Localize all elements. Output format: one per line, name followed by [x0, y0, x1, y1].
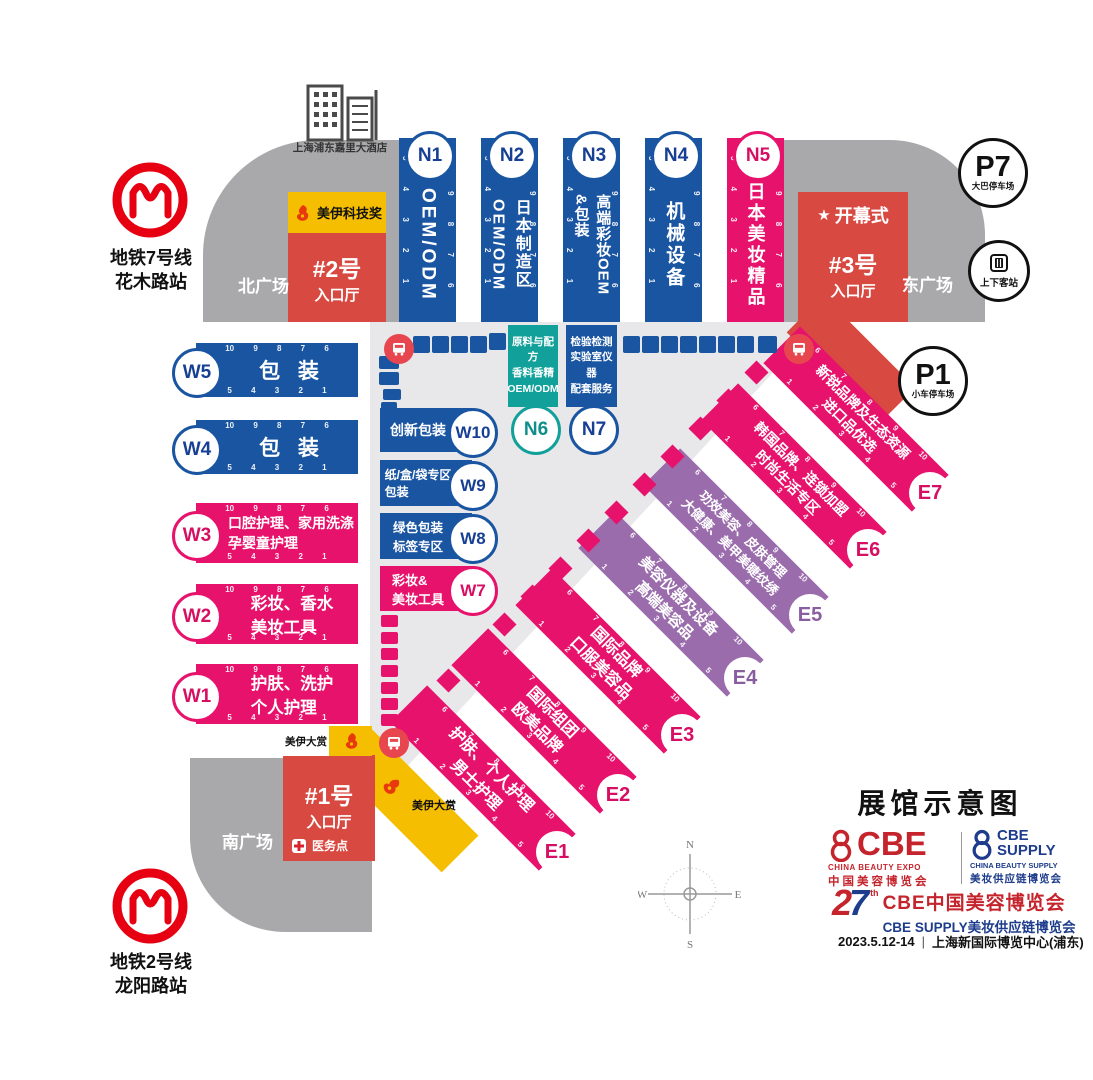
entrance-1-number: #1号 [305, 777, 354, 811]
hall-N3-right-numbers: 10 9 8 7 6 [610, 156, 618, 314]
hall-N6-label: 原料与配方 香料香精 OEM/ODM [507, 335, 558, 398]
hall-N3-badge: N3 [569, 131, 619, 181]
parking-p1-id: P1 [915, 362, 950, 388]
service-box [661, 336, 678, 353]
service-box [470, 336, 487, 353]
opening-ceremony-label: 开幕式 [835, 202, 889, 228]
meiyi-logo-icon [292, 203, 312, 223]
opening-ceremony: ★ 开幕式 [817, 202, 888, 228]
station-icon [989, 253, 1009, 273]
edition-title-cn: CBE中国美容博览会 [883, 888, 1076, 915]
hall-W8-badge: W8 [448, 514, 498, 564]
entrance-2-label: 入口厅 [314, 284, 359, 305]
hall-W4-badge: W4 [172, 425, 222, 475]
hall-W4-label: 包 装 [229, 432, 325, 462]
service-box [432, 336, 449, 353]
hall-W3-label: 口腔护理、家用洗涤 孕婴童护理 [200, 513, 354, 553]
hall-W2-top-numbers: 10 9 8 7 6 [196, 586, 358, 594]
meiyi-logo-icon [341, 731, 361, 751]
hall-W9-badge: W9 [448, 461, 498, 511]
hall-W7-badge: W7 [448, 566, 498, 616]
star-icon: ★ [817, 206, 830, 224]
edition-titles: CBE中国美容博览会 CBE SUPPLY美妆供应链博览会 [883, 888, 1076, 936]
cbe-logo-mark [828, 828, 854, 862]
compass-n: N [686, 839, 694, 851]
hall-W1-bottom-numbers: 5 4 3 2 1 [196, 714, 358, 722]
hall-W1-badge: W1 [172, 672, 222, 722]
cbe-supply-logo-name: CBE SUPPLY [997, 828, 1056, 858]
hall-E6-label: 韩国品牌、连锁加盟 时尚生活专区 [736, 418, 852, 534]
south-plaza-label: 南广场 [222, 828, 273, 853]
entrance-2-number: #2号 [313, 250, 362, 284]
service-box [737, 336, 754, 353]
entrance-3-number: #3号 [829, 246, 878, 280]
service-box [379, 372, 399, 385]
hall-W4-top-numbers: 10 9 8 7 6 [196, 422, 358, 430]
hall-E7-badge: E7 [909, 472, 951, 514]
service-box [623, 336, 640, 353]
service-box [451, 336, 468, 353]
hall-N7-label: 检验检测 实验室仪器 配套服务 [566, 335, 617, 398]
hall-N4-label: 机械设备 [660, 201, 688, 289]
service-box [381, 714, 398, 726]
medical-label: 医务点 [312, 837, 348, 854]
shuttle-bus-icon [384, 334, 414, 364]
cbe-logo-en: CHINA BEAUTY EXPO [828, 863, 956, 872]
metro2-label: 地铁2号线 龙阳路站 [96, 950, 206, 999]
event-date: 2023.5.12-14 [838, 934, 915, 949]
hall-N7: 检验检测 实验室仪器 配套服务 [566, 325, 617, 407]
hall-W1-label: 护肤、洗护 个人护理 [221, 670, 334, 718]
entrance-hall-3: ★ 开幕式 #3号 入口厅 [798, 192, 908, 322]
hall-W2-badge: W2 [172, 592, 222, 642]
parking-p7: P7 大巴停车场 [958, 138, 1028, 208]
hall-E6-badge: E6 [847, 529, 889, 571]
medical-point: 医务点 [291, 837, 348, 854]
hall-N1-right-numbers: 10 9 8 7 6 [446, 156, 454, 314]
service-box [680, 336, 697, 353]
compass-s: S [687, 939, 693, 951]
hall-N7-badge: N7 [569, 405, 619, 455]
service-box [699, 336, 716, 353]
grand-award-ramp-label: 美伊大赏 [412, 797, 456, 813]
hall-N1-label: OEM/ODM [414, 188, 442, 302]
page-title: 展馆示意图 [790, 782, 1090, 822]
tech-award-label: 美伊科技奖 [317, 203, 382, 222]
logo-divider [961, 832, 962, 884]
hall-N1-badge: N1 [405, 131, 455, 181]
metro-logo-line2 [112, 868, 188, 944]
hall-W10-badge: W10 [448, 408, 498, 458]
hall-N2-badge: N2 [487, 131, 537, 181]
hall-W2-label: 彩妆、香水 美妆工具 [221, 590, 334, 638]
hall-E3-badge: E3 [661, 714, 703, 756]
service-box [381, 682, 398, 694]
hotel-label: 上海浦东嘉里大酒店 [284, 140, 396, 155]
passenger-station-label: 上下客站 [980, 275, 1018, 289]
hall-W3-bottom-numbers: 5 4 3 2 1 [196, 553, 358, 561]
hall-E2-badge: E2 [597, 774, 639, 816]
hall-N4-right-numbers: 10 9 8 7 6 [692, 156, 700, 314]
hall-E4-badge: E4 [724, 657, 766, 699]
service-box [413, 336, 430, 353]
parking-p1: P1 小车停车场 [898, 346, 968, 416]
hall-N2-left-numbers: 5 4 3 2 1 [483, 156, 491, 314]
meiyi-logo-icon [376, 770, 407, 801]
edition-digit-7: 7 [849, 888, 869, 919]
medical-cross-icon [291, 838, 307, 854]
parking-p7-label: 大巴停车场 [972, 180, 1015, 192]
service-box [381, 402, 397, 412]
east-plaza-label: 东广场 [902, 271, 953, 296]
hall-W2-bottom-numbers: 5 4 3 2 1 [196, 634, 358, 642]
hall-W5-bottom-numbers: 5 4 3 2 1 [196, 387, 358, 395]
hall-N6-badge: N6 [511, 405, 561, 455]
hall-N2-label: 日本制造区 OEM/ODM [486, 199, 532, 291]
service-box [381, 698, 398, 710]
service-box [381, 615, 398, 627]
hall-N2-right-numbers: 10 9 8 7 6 [528, 156, 536, 314]
hall-W5-top-numbers: 10 9 8 7 6 [196, 345, 358, 353]
hall-N5-right-numbers: 10 9 8 7 6 [774, 156, 782, 314]
entrance-hall-1: #1号 入口厅 医务点 [283, 755, 375, 861]
date-venue-separator: | [922, 934, 925, 949]
cbe-logo-name: CBE [857, 828, 927, 859]
hall-W1-top-numbers: 10 9 8 7 6 [196, 666, 358, 674]
service-box [718, 336, 735, 353]
compass-e: E [735, 889, 742, 901]
hall-N5-left-numbers: 5 4 3 2 1 [729, 156, 737, 314]
metro-logo-line7 [112, 162, 188, 238]
hall-N3-label: 高端彩妆OEM &包装 [570, 194, 614, 295]
entrance-1-label: 入口厅 [306, 811, 351, 832]
event-date-venue: 2023.5.12-14 | 上海新国际博览中心(浦东) [838, 932, 1084, 951]
grand-award-strip: 美伊大赏 [283, 726, 329, 756]
parking-p1-label: 小车停车场 [912, 388, 955, 400]
hall-W4-bottom-numbers: 5 4 3 2 1 [196, 464, 358, 472]
compass-w: W [638, 889, 648, 901]
shuttle-bus-icon [784, 334, 814, 364]
metro7-label: 地铁7号线 花木路站 [96, 246, 206, 295]
meiyi-tech-award: 美伊科技奖 [288, 192, 386, 233]
cbe-logo: CBE CHINA BEAUTY EXPO 中国美容博览会 [828, 828, 956, 889]
hall-W5-label: 包 装 [229, 355, 325, 385]
service-box [383, 389, 401, 400]
service-box [489, 333, 506, 350]
compass-rose: N S W E [638, 836, 742, 952]
service-box [381, 665, 398, 677]
parking-p7-id: P7 [975, 154, 1010, 180]
hall-N5-label: 日本美妆精品 [742, 182, 768, 308]
hall-W3-badge: W3 [172, 511, 222, 561]
edition-line: 2 7 th CBE中国美容博览会 CBE SUPPLY美妆供应链博览会 [832, 888, 1076, 936]
cbe-supply-logo-mark [970, 828, 994, 860]
event-venue: 上海新国际博览中心(浦东) [932, 932, 1084, 951]
hall-N4-badge: N4 [651, 131, 701, 181]
hall-W5-badge: W5 [172, 348, 222, 398]
edition-sup: th [870, 888, 879, 898]
hall-N1-left-numbers: 5 4 3 2 1 [401, 156, 409, 314]
hall-N3-left-numbers: 5 4 3 2 1 [565, 156, 573, 314]
hall-W3-top-numbers: 10 9 8 7 6 [196, 505, 358, 513]
hall-N4-left-numbers: 5 4 3 2 1 [647, 156, 655, 314]
exhibition-floorplan: 北广场 东广场 南广场 地铁7号线 花木路站 地铁2号线 龙阳路站 上海浦东嘉里… [0, 0, 1093, 1080]
service-box [642, 336, 659, 353]
hall-N6: 原料与配方 香料香精 OEM/ODM [508, 325, 558, 407]
hotel-icon [296, 80, 384, 142]
entrance-hall-2: #2号 入口厅 [288, 233, 386, 322]
service-box [758, 336, 777, 353]
cbe-supply-logo-cn: 美妆供应链博览会 [970, 871, 1092, 886]
north-plaza-label: 北广场 [238, 272, 289, 297]
hall-E1-badge: E1 [536, 831, 578, 873]
grand-award-label: 美伊大赏 [285, 734, 327, 749]
service-box [381, 632, 398, 644]
hall-N5-badge: N5 [733, 131, 783, 181]
cbe-supply-logo: CBE SUPPLY CHINA BEAUTY SUPPLY 美妆供应链博览会 [970, 828, 1092, 886]
hall-E5-label: 功效美容、皮肤管理 大健康、美甲美睫纹绣 [678, 483, 795, 600]
shuttle-bus-icon [379, 728, 409, 758]
service-box [381, 648, 398, 660]
passenger-station: 上下客站 [968, 240, 1030, 302]
grand-award-logo-box [329, 726, 372, 756]
entrance-3-label: 入口厅 [830, 280, 875, 301]
hall-E5-badge: E5 [789, 594, 831, 636]
cbe-supply-logo-en: CHINA BEAUTY SUPPLY [970, 861, 1092, 870]
